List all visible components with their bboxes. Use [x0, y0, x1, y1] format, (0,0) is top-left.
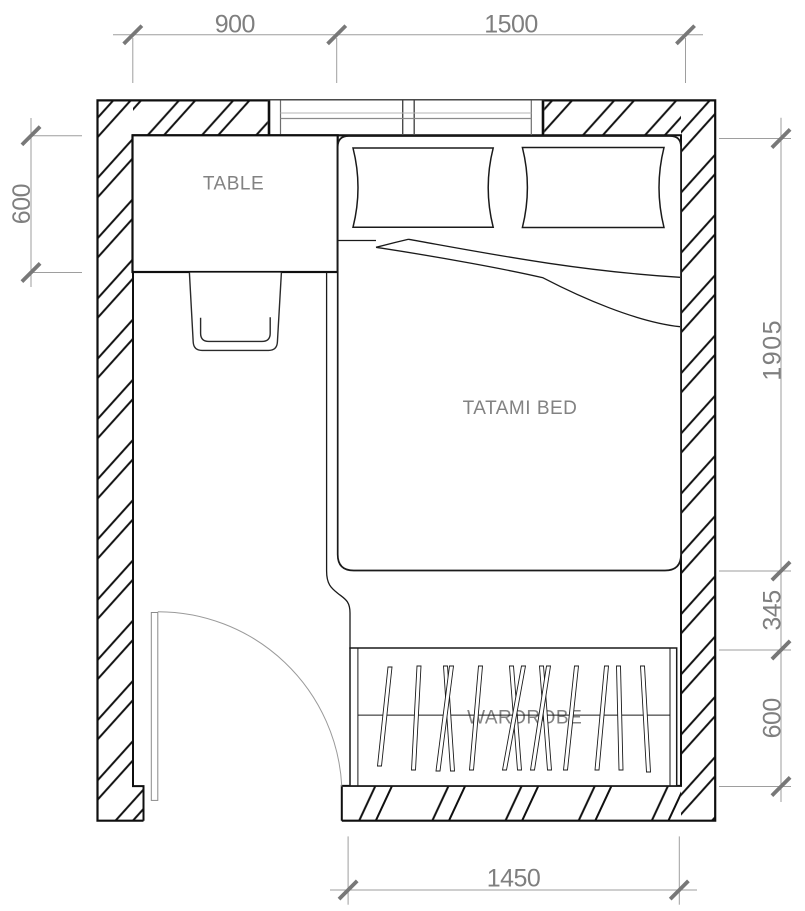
- svg-text:1905: 1905: [759, 319, 787, 381]
- svg-text:1500: 1500: [484, 11, 538, 39]
- svg-text:TABLE: TABLE: [203, 174, 264, 195]
- svg-text:345: 345: [759, 590, 787, 630]
- svg-text:1450: 1450: [487, 865, 541, 893]
- svg-text:WARDROBE: WARDROBE: [467, 707, 582, 728]
- svg-text:600: 600: [8, 184, 36, 224]
- svg-text:TATAMI BED: TATAMI BED: [463, 398, 578, 419]
- svg-text:900: 900: [215, 11, 255, 39]
- svg-text:600: 600: [759, 698, 787, 738]
